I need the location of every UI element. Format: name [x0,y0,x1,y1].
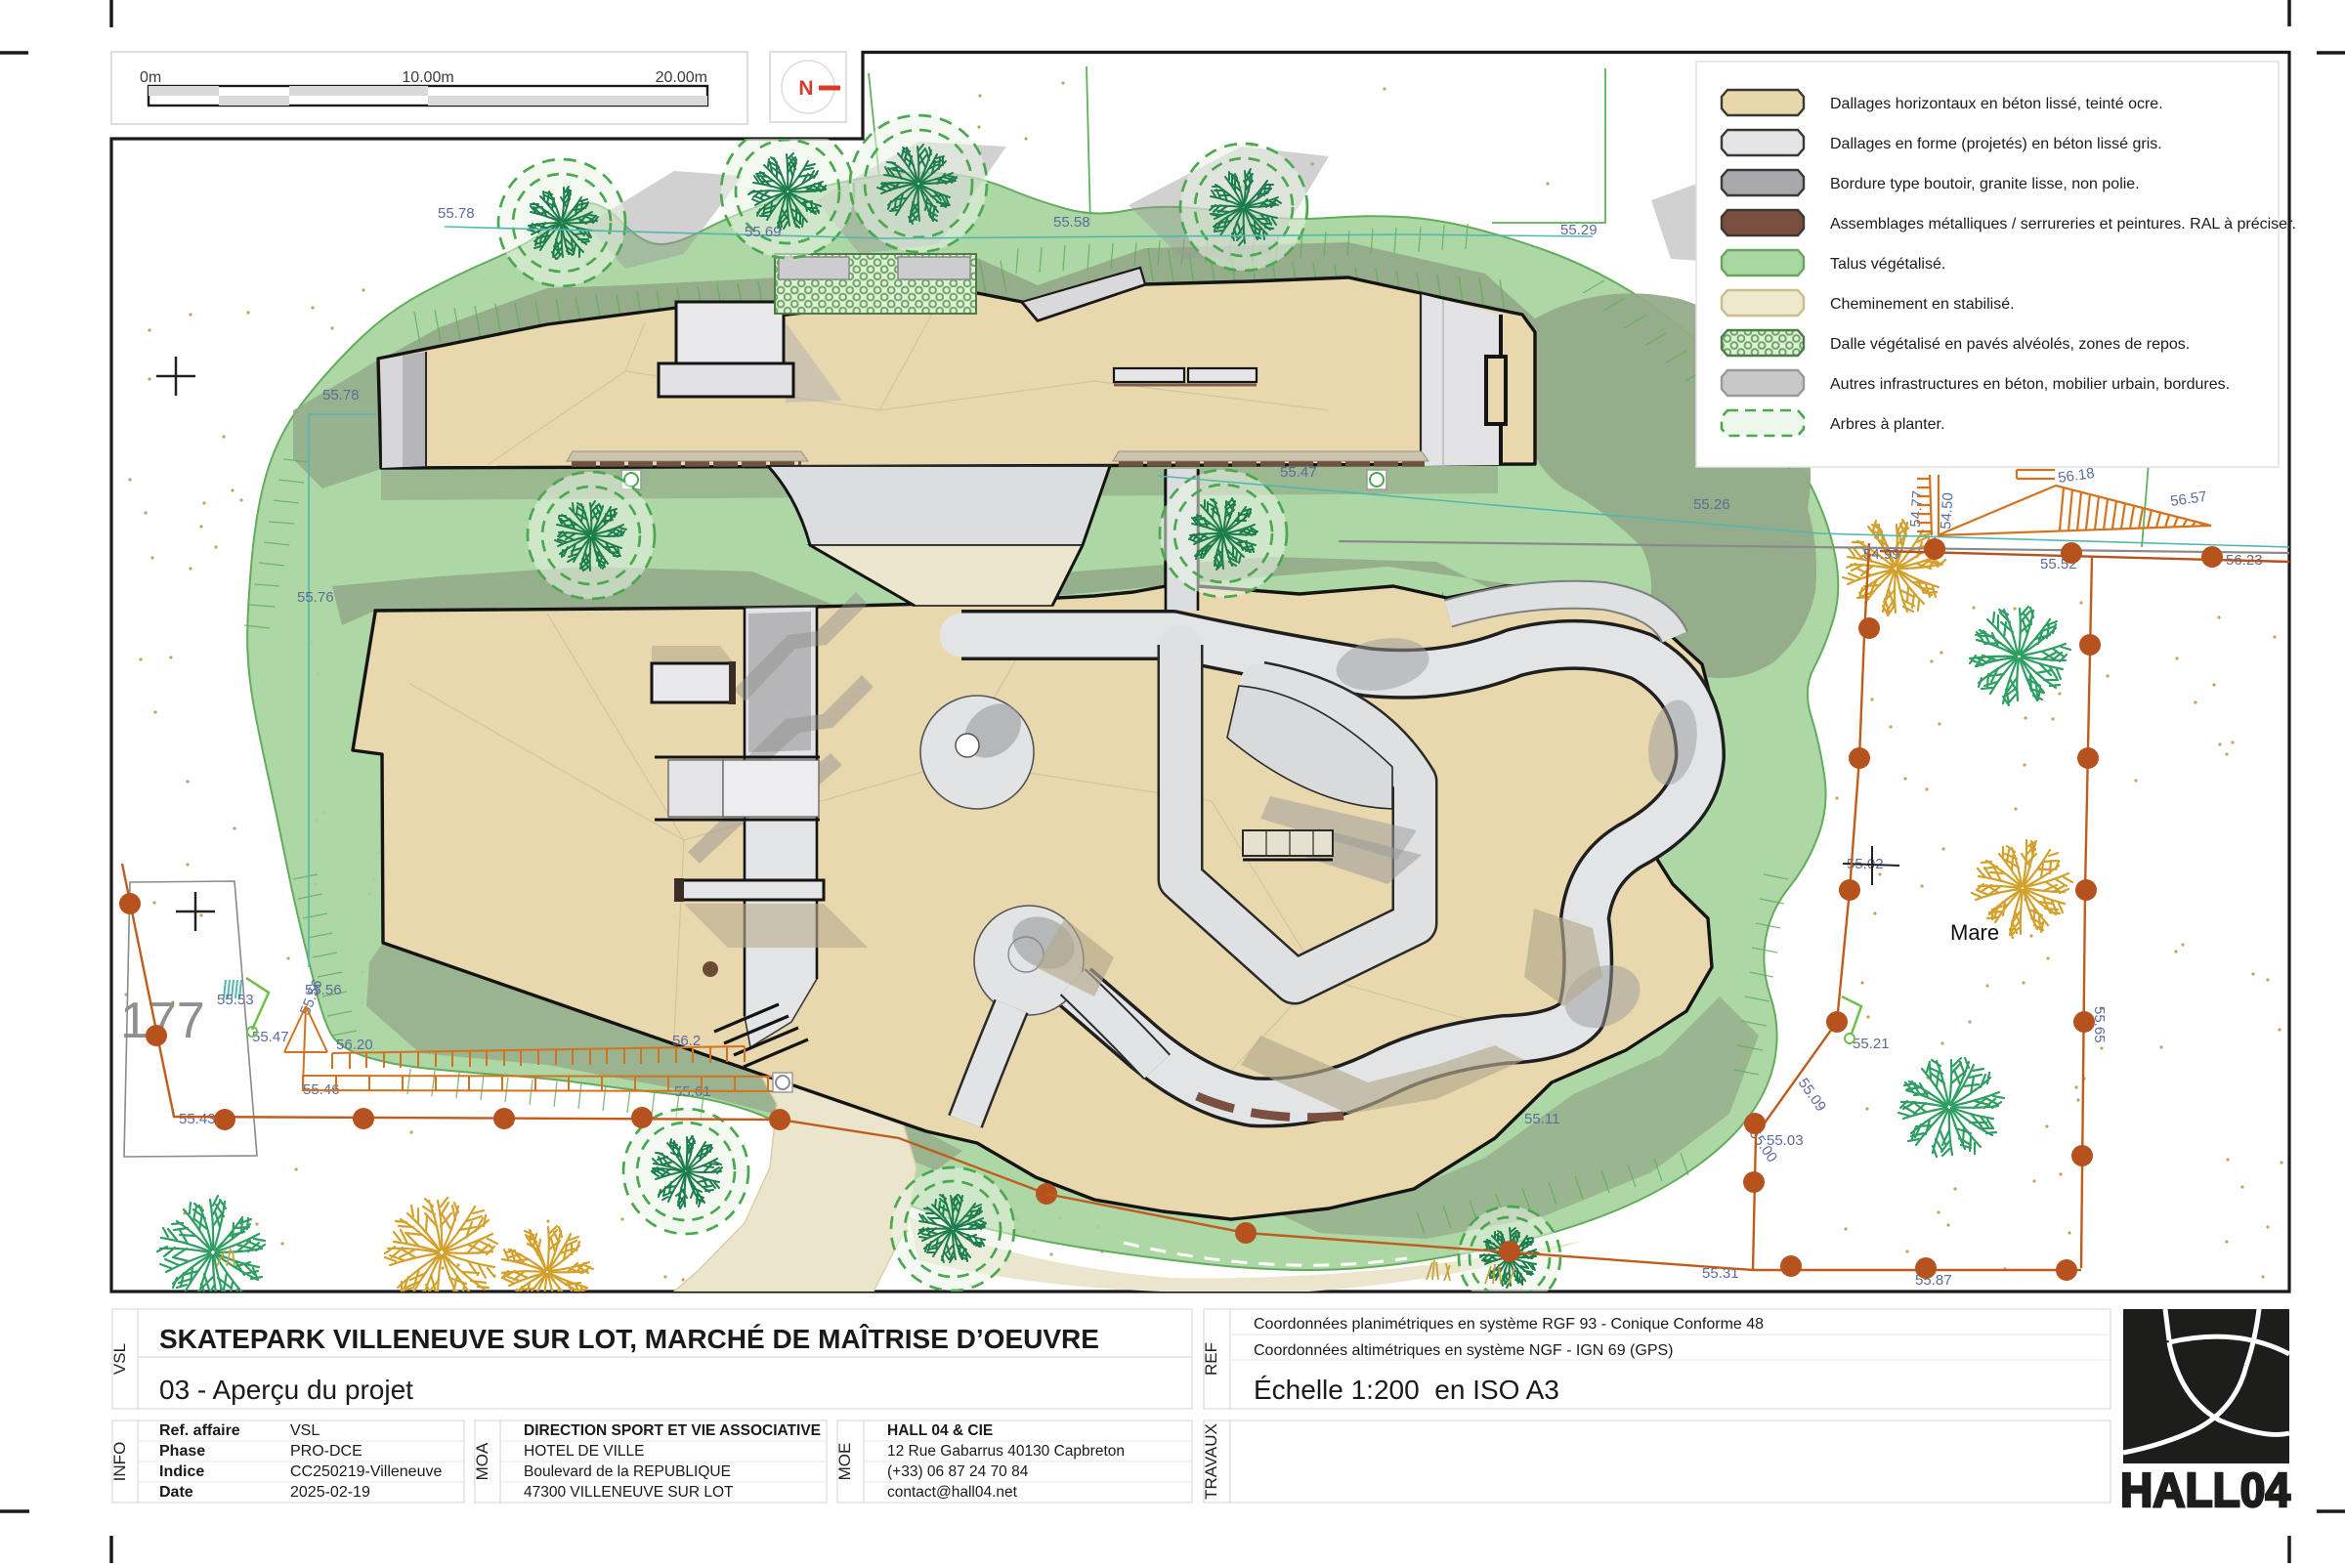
svg-text:PRO-DCE: PRO-DCE [290,1443,362,1460]
svg-text:Boulevard de la REPUBLIQUE: Boulevard de la REPUBLIQUE [524,1463,731,1480]
svg-text:55.53: 55.53 [217,992,254,1008]
svg-text:Talus végétalisé.: Talus végétalisé. [1830,256,1945,273]
svg-text:Ref. affaire: Ref. affaire [159,1422,240,1439]
svg-text:MOE: MOE [835,1443,854,1481]
svg-text:VSL: VSL [110,1343,129,1375]
svg-text:47300 VILLENEUVE SUR LOT: 47300 VILLENEUVE SUR LOT [524,1484,734,1501]
svg-text:55.58: 55.58 [1053,214,1090,231]
svg-text:Cheminement en stabilisé.: Cheminement en stabilisé. [1830,296,2015,313]
svg-text:Date: Date [159,1484,193,1501]
svg-text:Dallages horizontaux en béton: Dallages horizontaux en béton lissé, tei… [1830,96,2163,112]
svg-text:12 Rue Gabarrus 40130 Capbreto: 12 Rue Gabarrus 40130 Capbreton [887,1443,1125,1460]
svg-text:(+33) 06 87 24 70 84: (+33) 06 87 24 70 84 [887,1463,1029,1480]
svg-text:SKATEPARK VILLENEUVE SUR LOT,: SKATEPARK VILLENEUVE SUR LOT, MARCHÉ DE … [159,1324,1099,1354]
svg-text:03 - Aperçu du projet: 03 - Aperçu du projet [159,1375,413,1405]
svg-text:55.43: 55.43 [179,1111,216,1127]
svg-text:DIRECTION SPORT ET VIE ASSOCIA: DIRECTION SPORT ET VIE ASSOCIATIVE [524,1422,821,1439]
svg-text:Échelle 1:200 en ISO A3: Échelle 1:200 en ISO A3 [1254,1375,1559,1405]
svg-text:55.47: 55.47 [1280,464,1317,481]
svg-text:CC250219-Villeneuve: CC250219-Villeneuve [290,1463,442,1480]
svg-text:Bordure type boutoir, granite: Bordure type boutoir, granite lisse, non… [1830,176,2140,192]
svg-text:55.21: 55.21 [1853,1036,1890,1052]
svg-text:INFO: INFO [110,1442,129,1482]
svg-text:MOA: MOA [473,1442,491,1480]
svg-text:Mare: Mare [1950,920,1999,945]
svg-text:Coordonnées altimétriques en s: Coordonnées altimétriques en système NGF… [1254,1342,1674,1359]
svg-text:20.00m: 20.00m [656,69,707,86]
svg-text:Dallages en forme (projetés) e: Dallages en forme (projetés) en béton li… [1830,136,2162,152]
svg-text:REF: REF [1202,1342,1220,1376]
svg-text:Dalle végétalisé en pavés alvé: Dalle végétalisé en pavés alvéolés, zone… [1830,336,2190,353]
svg-text:Assemblages métalliques / serr: Assemblages métalliques / serrureries et… [1830,216,2296,233]
svg-text:HOTEL DE VILLE: HOTEL DE VILLE [524,1443,644,1460]
svg-text:Phase: Phase [159,1443,205,1460]
svg-text:2025-02-19: 2025-02-19 [290,1484,370,1501]
svg-text:55.03: 55.03 [1767,1132,1804,1149]
svg-text:10.00m: 10.00m [402,69,453,86]
svg-text:55.69: 55.69 [745,224,782,240]
svg-text:54.50: 54.50 [1938,492,1957,530]
svg-text:Autres infrastructures en béto: Autres infrastructures en béton, mobilie… [1830,376,2230,393]
svg-text:Indice: Indice [159,1463,204,1480]
svg-text:N: N [798,77,813,100]
svg-text:55.78: 55.78 [322,387,360,403]
svg-text:Coordonnées planimétriques en: Coordonnées planimétriques en système RG… [1254,1316,1764,1333]
svg-text:56.20: 56.20 [336,1037,373,1053]
svg-text:0m: 0m [140,69,161,86]
svg-text:contact@hall04.net: contact@hall04.net [887,1484,1018,1501]
svg-text:VSL: VSL [290,1422,320,1439]
svg-text:55.29: 55.29 [1560,222,1598,238]
svg-text:HALL04: HALL04 [2120,1464,2290,1517]
svg-text:55.76: 55.76 [297,589,334,606]
svg-text:55.78: 55.78 [438,205,475,222]
svg-text:TRAVAUX: TRAVAUX [1202,1423,1220,1500]
svg-text:HALL 04 & CIE: HALL 04 & CIE [887,1422,993,1439]
svg-text:55.26: 55.26 [1693,496,1730,513]
svg-text:55.11: 55.11 [1524,1111,1559,1127]
svg-text:Arbres à planter.: Arbres à planter. [1830,416,1944,433]
